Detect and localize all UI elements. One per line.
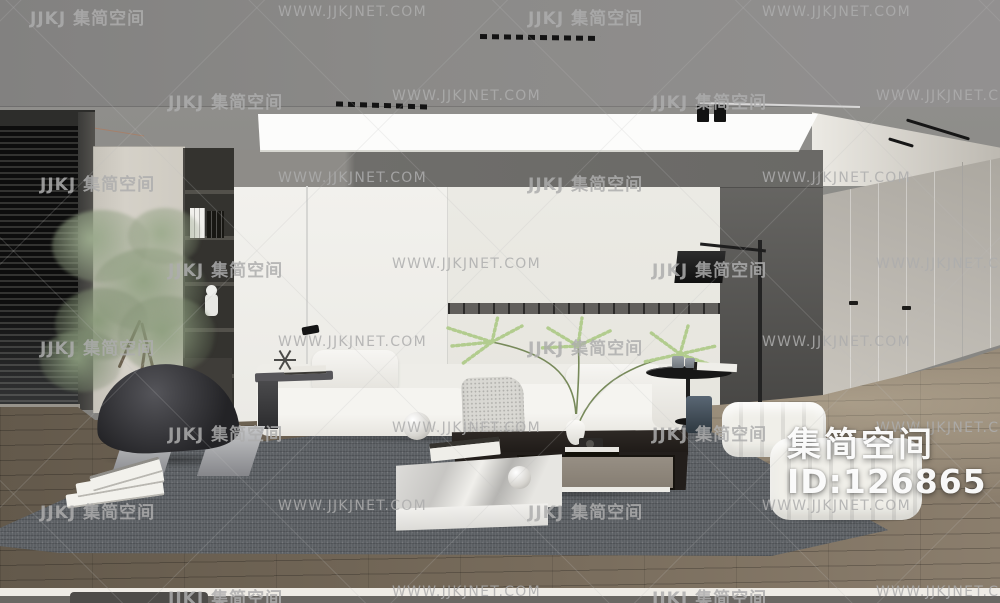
cylinder-spotlight <box>697 104 709 122</box>
wardrobe-handle-icon <box>902 306 911 310</box>
decor-sphere <box>508 466 531 489</box>
floor-lamp-shade <box>674 251 725 283</box>
blue-cylinder-vase <box>686 396 712 433</box>
feature-wall-top-band <box>230 150 823 188</box>
cylinder-spotlight <box>714 104 726 122</box>
site-id-badge: 集简空间 ID:126865 <box>787 428 987 498</box>
tree-foliage <box>40 330 124 392</box>
shelf-books <box>207 211 224 238</box>
astronaut-figurine-head <box>206 285 217 296</box>
c-side-table-leg <box>258 381 278 429</box>
tree-foliage <box>128 208 202 264</box>
glass-cup <box>672 356 684 368</box>
wall-corner-line <box>962 162 963 357</box>
decor-sphere <box>403 412 431 440</box>
led-panel-light <box>258 114 818 152</box>
ceiling <box>0 0 1000 112</box>
dark-side-wall <box>718 150 823 416</box>
badge-id-text: ID:126865 <box>787 465 987 498</box>
reading-lamp-pole <box>306 186 308 378</box>
star-decor-icon <box>274 350 296 370</box>
foreground-object <box>70 592 208 603</box>
table-books <box>565 447 619 456</box>
badge-brand-text: 集简空间 <box>787 428 987 462</box>
interior-render: JJKJ 集简空间WWW.JJKJNET.COMJJKJ 集简空间WWW.JJK… <box>0 0 1000 603</box>
tree-foliage <box>118 296 216 374</box>
wardrobe-handle-icon <box>849 301 858 305</box>
